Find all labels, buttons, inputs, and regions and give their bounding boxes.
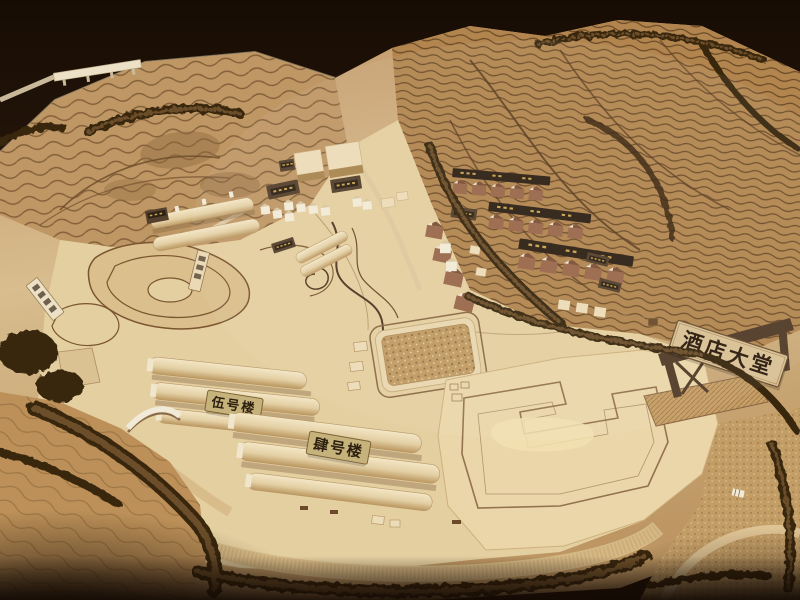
- photo-architectural-model: 伍号楼 肆号楼: [0, 0, 800, 600]
- scene-svg: 伍号楼 肆号楼: [0, 0, 800, 600]
